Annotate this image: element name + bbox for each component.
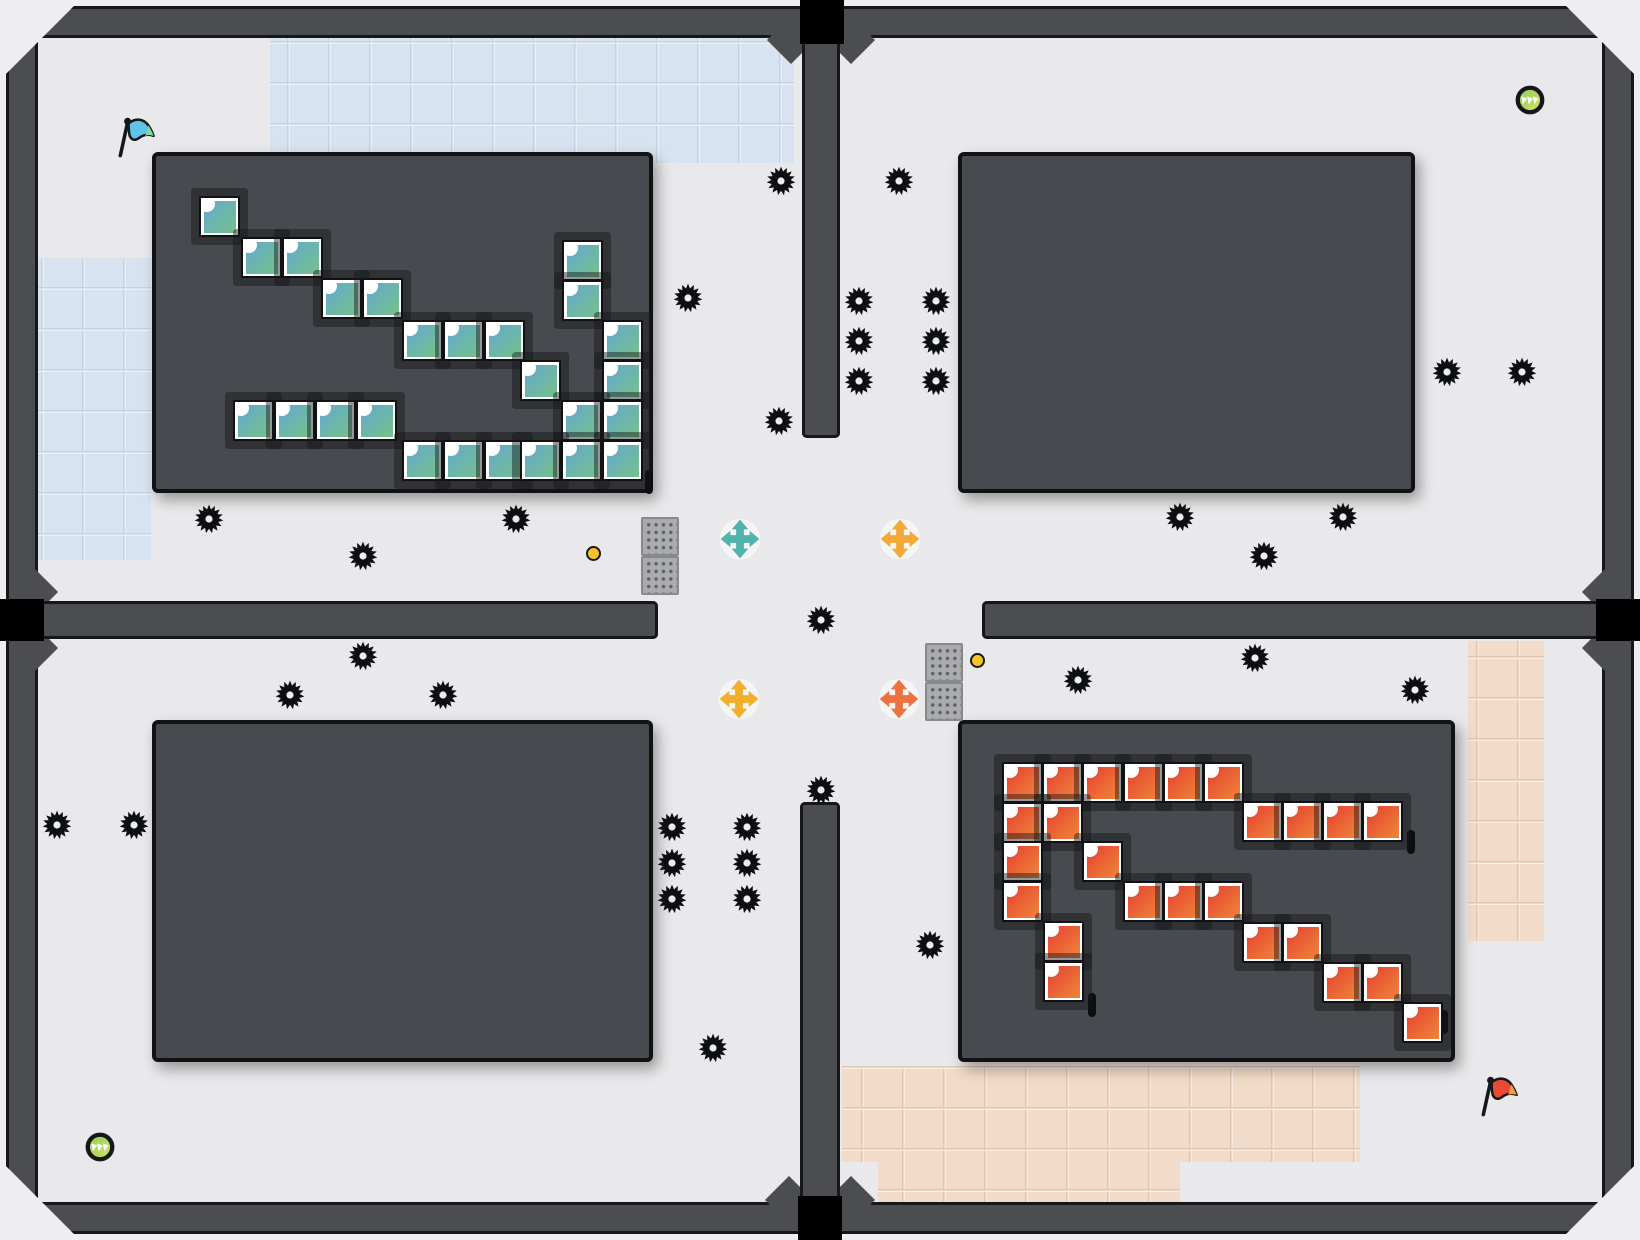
red-flag-icon [1475, 1072, 1527, 1124]
gear-hazard-icon [1246, 538, 1282, 574]
red-block [1002, 762, 1043, 803]
tinted-region-peach [1468, 641, 1544, 941]
grate-tile [641, 517, 679, 556]
teal-block [602, 440, 643, 481]
gear-hazard-icon [654, 881, 690, 917]
move-cross-teal[interactable] [717, 516, 763, 562]
divider-wall-1 [800, 802, 840, 1206]
move-cross-orange[interactable] [876, 676, 922, 722]
red-block [1082, 841, 1123, 882]
divider-wall-2 [6, 601, 658, 639]
red-block [1203, 881, 1244, 922]
teal-block [484, 440, 525, 481]
teal-block [274, 400, 315, 441]
teal-block [561, 400, 602, 441]
gear-hazard-icon [191, 501, 227, 537]
teal-block [602, 400, 643, 441]
red-block [1043, 961, 1084, 1002]
red-block [1203, 762, 1244, 803]
red-block [1242, 922, 1283, 963]
slot-marker [1088, 993, 1096, 1017]
red-block [1002, 802, 1043, 843]
teal-block [443, 320, 484, 361]
grate-tile [925, 682, 963, 721]
gear-hazard-icon [1397, 672, 1433, 708]
move-cross-yellow[interactable] [716, 676, 762, 722]
gear-hazard-icon [654, 809, 690, 845]
teal-block [562, 280, 603, 321]
teal-block [282, 237, 323, 278]
gear-hazard-icon [729, 845, 765, 881]
gear-hazard-icon [1325, 499, 1361, 535]
gear-hazard-icon [918, 283, 954, 319]
room-top-right [958, 152, 1415, 493]
teal-block [356, 400, 397, 441]
red-block [1362, 962, 1403, 1003]
teal-block [520, 360, 561, 401]
teal-block [199, 196, 240, 237]
gear-hazard-icon [729, 809, 765, 845]
red-block [1002, 841, 1043, 882]
gear-hazard-icon [116, 807, 152, 843]
red-block [1282, 922, 1323, 963]
red-block [1322, 801, 1363, 842]
grate-tile [925, 643, 963, 682]
gear-hazard-icon [918, 323, 954, 359]
slot-marker [645, 470, 653, 494]
divider-wall-3 [982, 601, 1634, 639]
gear-hazard-icon [670, 280, 706, 316]
gear-hazard-icon [498, 501, 534, 537]
red-block [1082, 762, 1123, 803]
move-cross-amber[interactable] [877, 516, 923, 562]
red-block [1002, 881, 1043, 922]
gear-hazard-icon [654, 845, 690, 881]
red-block [1322, 962, 1363, 1003]
gear-hazard-icon [272, 677, 308, 713]
divider-wall-0 [802, 30, 840, 438]
edge-gap-2 [0, 599, 44, 641]
gear-hazard-icon [729, 881, 765, 917]
teal-block [520, 440, 561, 481]
coin-dot [970, 653, 985, 668]
room-bottom-left [152, 720, 653, 1062]
gear-hazard-icon [345, 638, 381, 674]
gear-hazard-icon [763, 163, 799, 199]
gear-hazard-icon [881, 163, 917, 199]
gear-hazard-icon [345, 538, 381, 574]
gear-hazard-icon [1504, 354, 1540, 390]
gear-hazard-icon [1060, 662, 1096, 698]
gear-hazard-icon [912, 927, 948, 963]
edge-gap-0 [800, 0, 844, 44]
slot-marker [1407, 830, 1415, 854]
gear-hazard-icon [1429, 354, 1465, 390]
red-block [1242, 801, 1283, 842]
teal-block [241, 237, 282, 278]
teal-block [321, 278, 362, 319]
red-block [1123, 762, 1164, 803]
teal-block [484, 320, 525, 361]
red-block [1043, 921, 1084, 962]
teal-block [561, 440, 602, 481]
red-block [1402, 1002, 1443, 1043]
red-block [1042, 762, 1083, 803]
gear-hazard-icon [39, 807, 75, 843]
boost-orb-icon[interactable] [1512, 82, 1548, 118]
edge-gap-3 [1596, 599, 1640, 641]
teal-block [443, 440, 484, 481]
gear-hazard-icon [761, 403, 797, 439]
gear-hazard-icon [803, 602, 839, 638]
coin-dot [586, 546, 601, 561]
teal-block [402, 320, 443, 361]
gear-hazard-icon [841, 283, 877, 319]
red-block [1163, 881, 1204, 922]
tinted-region-blue [38, 258, 151, 560]
gear-hazard-icon [425, 677, 461, 713]
red-block [1362, 801, 1403, 842]
red-block [1163, 762, 1204, 803]
teal-block [362, 278, 403, 319]
red-block [1042, 802, 1083, 843]
gear-hazard-icon [1237, 640, 1273, 676]
gear-hazard-icon [841, 323, 877, 359]
edge-gap-1 [798, 1196, 842, 1240]
teal-block [602, 360, 643, 401]
teal-block [233, 400, 274, 441]
gear-hazard-icon [803, 772, 839, 808]
teal-block [602, 320, 643, 361]
blue-flag-icon [112, 113, 164, 165]
boost-orb-icon[interactable] [82, 1129, 118, 1165]
tinted-region-peach [842, 1066, 1360, 1162]
game-screenshot [0, 0, 1640, 1240]
gear-hazard-icon [695, 1030, 731, 1066]
grate-tile [641, 556, 679, 595]
tinted-region-peach [878, 1162, 1180, 1202]
gear-hazard-icon [918, 363, 954, 399]
teal-block [562, 240, 603, 281]
game-map [0, 0, 1640, 1240]
tinted-region-blue [270, 38, 794, 163]
gear-hazard-icon [841, 363, 877, 399]
red-block [1282, 801, 1323, 842]
teal-block [315, 400, 356, 441]
teal-block [402, 440, 443, 481]
red-block [1123, 881, 1164, 922]
gear-hazard-icon [1162, 499, 1198, 535]
